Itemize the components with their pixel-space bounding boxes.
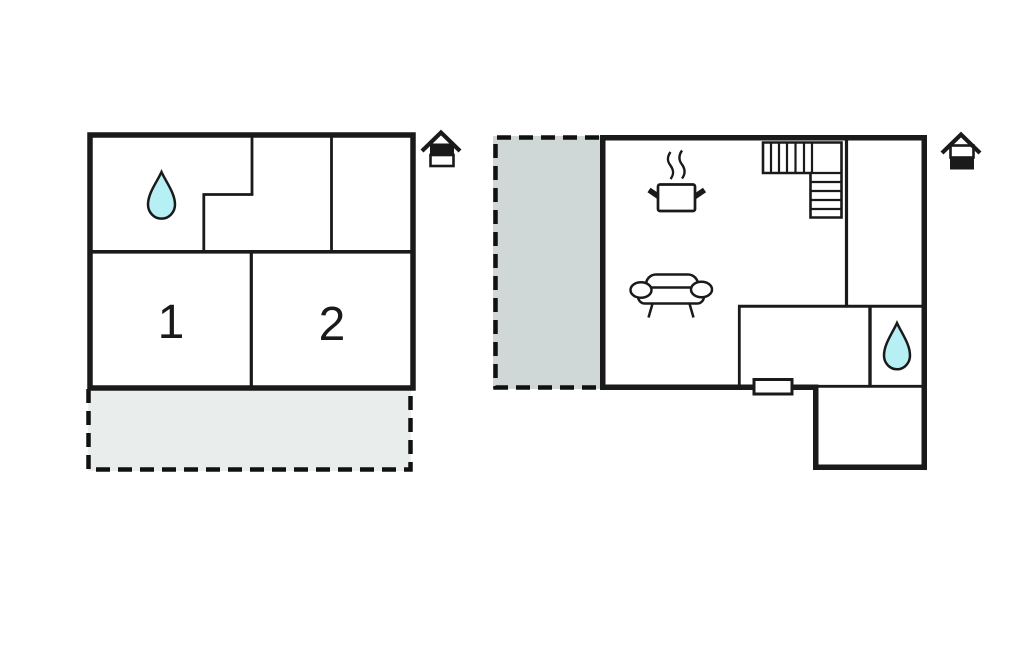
wall-top: [600, 135, 927, 141]
floor-plan-page: 1 2: [0, 0, 1024, 652]
window-marker: [754, 380, 792, 395]
terrace-upper-area: [88, 388, 411, 471]
stairs-outline: [763, 143, 842, 218]
house-icon-lower-half: [950, 158, 974, 170]
water-drop-icon: [884, 323, 910, 369]
steam-line-left: [668, 152, 673, 179]
annex-wall-bottom: [813, 465, 927, 471]
sofa-armrest-right: [691, 282, 712, 298]
wall-right: [922, 135, 928, 470]
terrace-ground-area: [493, 136, 600, 389]
wall-left: [600, 135, 606, 390]
room-1-label: 1: [158, 296, 185, 349]
stairs-icon: [763, 143, 842, 218]
room-2-label: 2: [319, 298, 346, 351]
floor-indicator-upper-icon: [422, 133, 460, 167]
house-icon-upper-half: [951, 146, 974, 158]
terrace-ground: [493, 136, 600, 389]
floor-plan-drawing: 1 2: [0, 0, 1024, 652]
ground-floor-plan: [493, 135, 980, 471]
steam-line-right: [679, 151, 684, 179]
house-icon-upper-half: [430, 144, 454, 156]
house-icon-lower-half: [431, 155, 454, 166]
sofa-icon: [631, 275, 713, 318]
annex-wall-left: [813, 385, 819, 471]
pot-body: [658, 185, 695, 212]
floor-indicator-ground-icon: [942, 135, 980, 170]
kitchen-pot-icon: [649, 151, 705, 212]
upper-floor-plan: 1 2: [88, 133, 460, 472]
terrace-upper: [88, 388, 411, 471]
sofa-armrest-left: [631, 282, 652, 298]
